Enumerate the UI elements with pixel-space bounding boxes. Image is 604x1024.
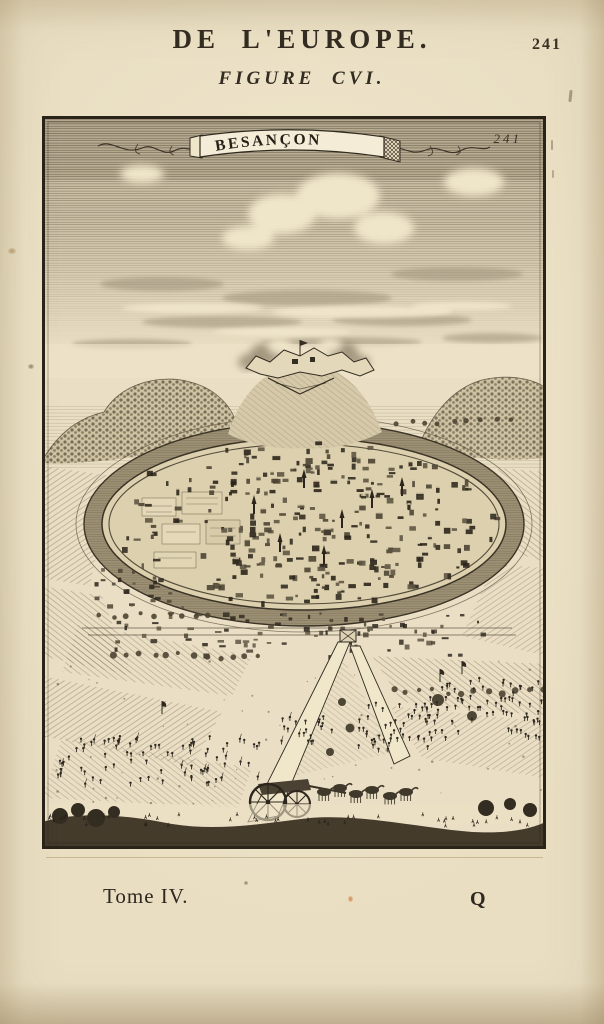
tome-label: Tome IV. — [103, 884, 188, 909]
signature-letter: Q — [470, 888, 486, 911]
foxing-spot — [8, 248, 16, 254]
plate-edge-mark — [551, 140, 553, 150]
plate-edge-mark — [552, 170, 554, 178]
ink-speck — [244, 881, 248, 885]
page-number: 241 — [532, 36, 562, 54]
plate-number: 241 — [494, 131, 523, 146]
ink-mark — [568, 90, 572, 102]
foreground — [42, 798, 546, 849]
plate-mark-line — [46, 857, 543, 858]
engraving-plate: BESANÇON 241 — [42, 116, 546, 849]
scanned-book-page: DE L'EUROPE. 241 FIGURE CVI. — [0, 0, 604, 1024]
page-title: DE L'EUROPE. — [0, 24, 604, 55]
sky — [42, 116, 546, 378]
figure-label: FIGURE CVI. — [0, 68, 604, 90]
foxing-spot — [348, 896, 353, 902]
besancon-birdseye-engraving: BESANÇON 241 — [42, 116, 546, 849]
foxing-spot — [28, 364, 34, 369]
